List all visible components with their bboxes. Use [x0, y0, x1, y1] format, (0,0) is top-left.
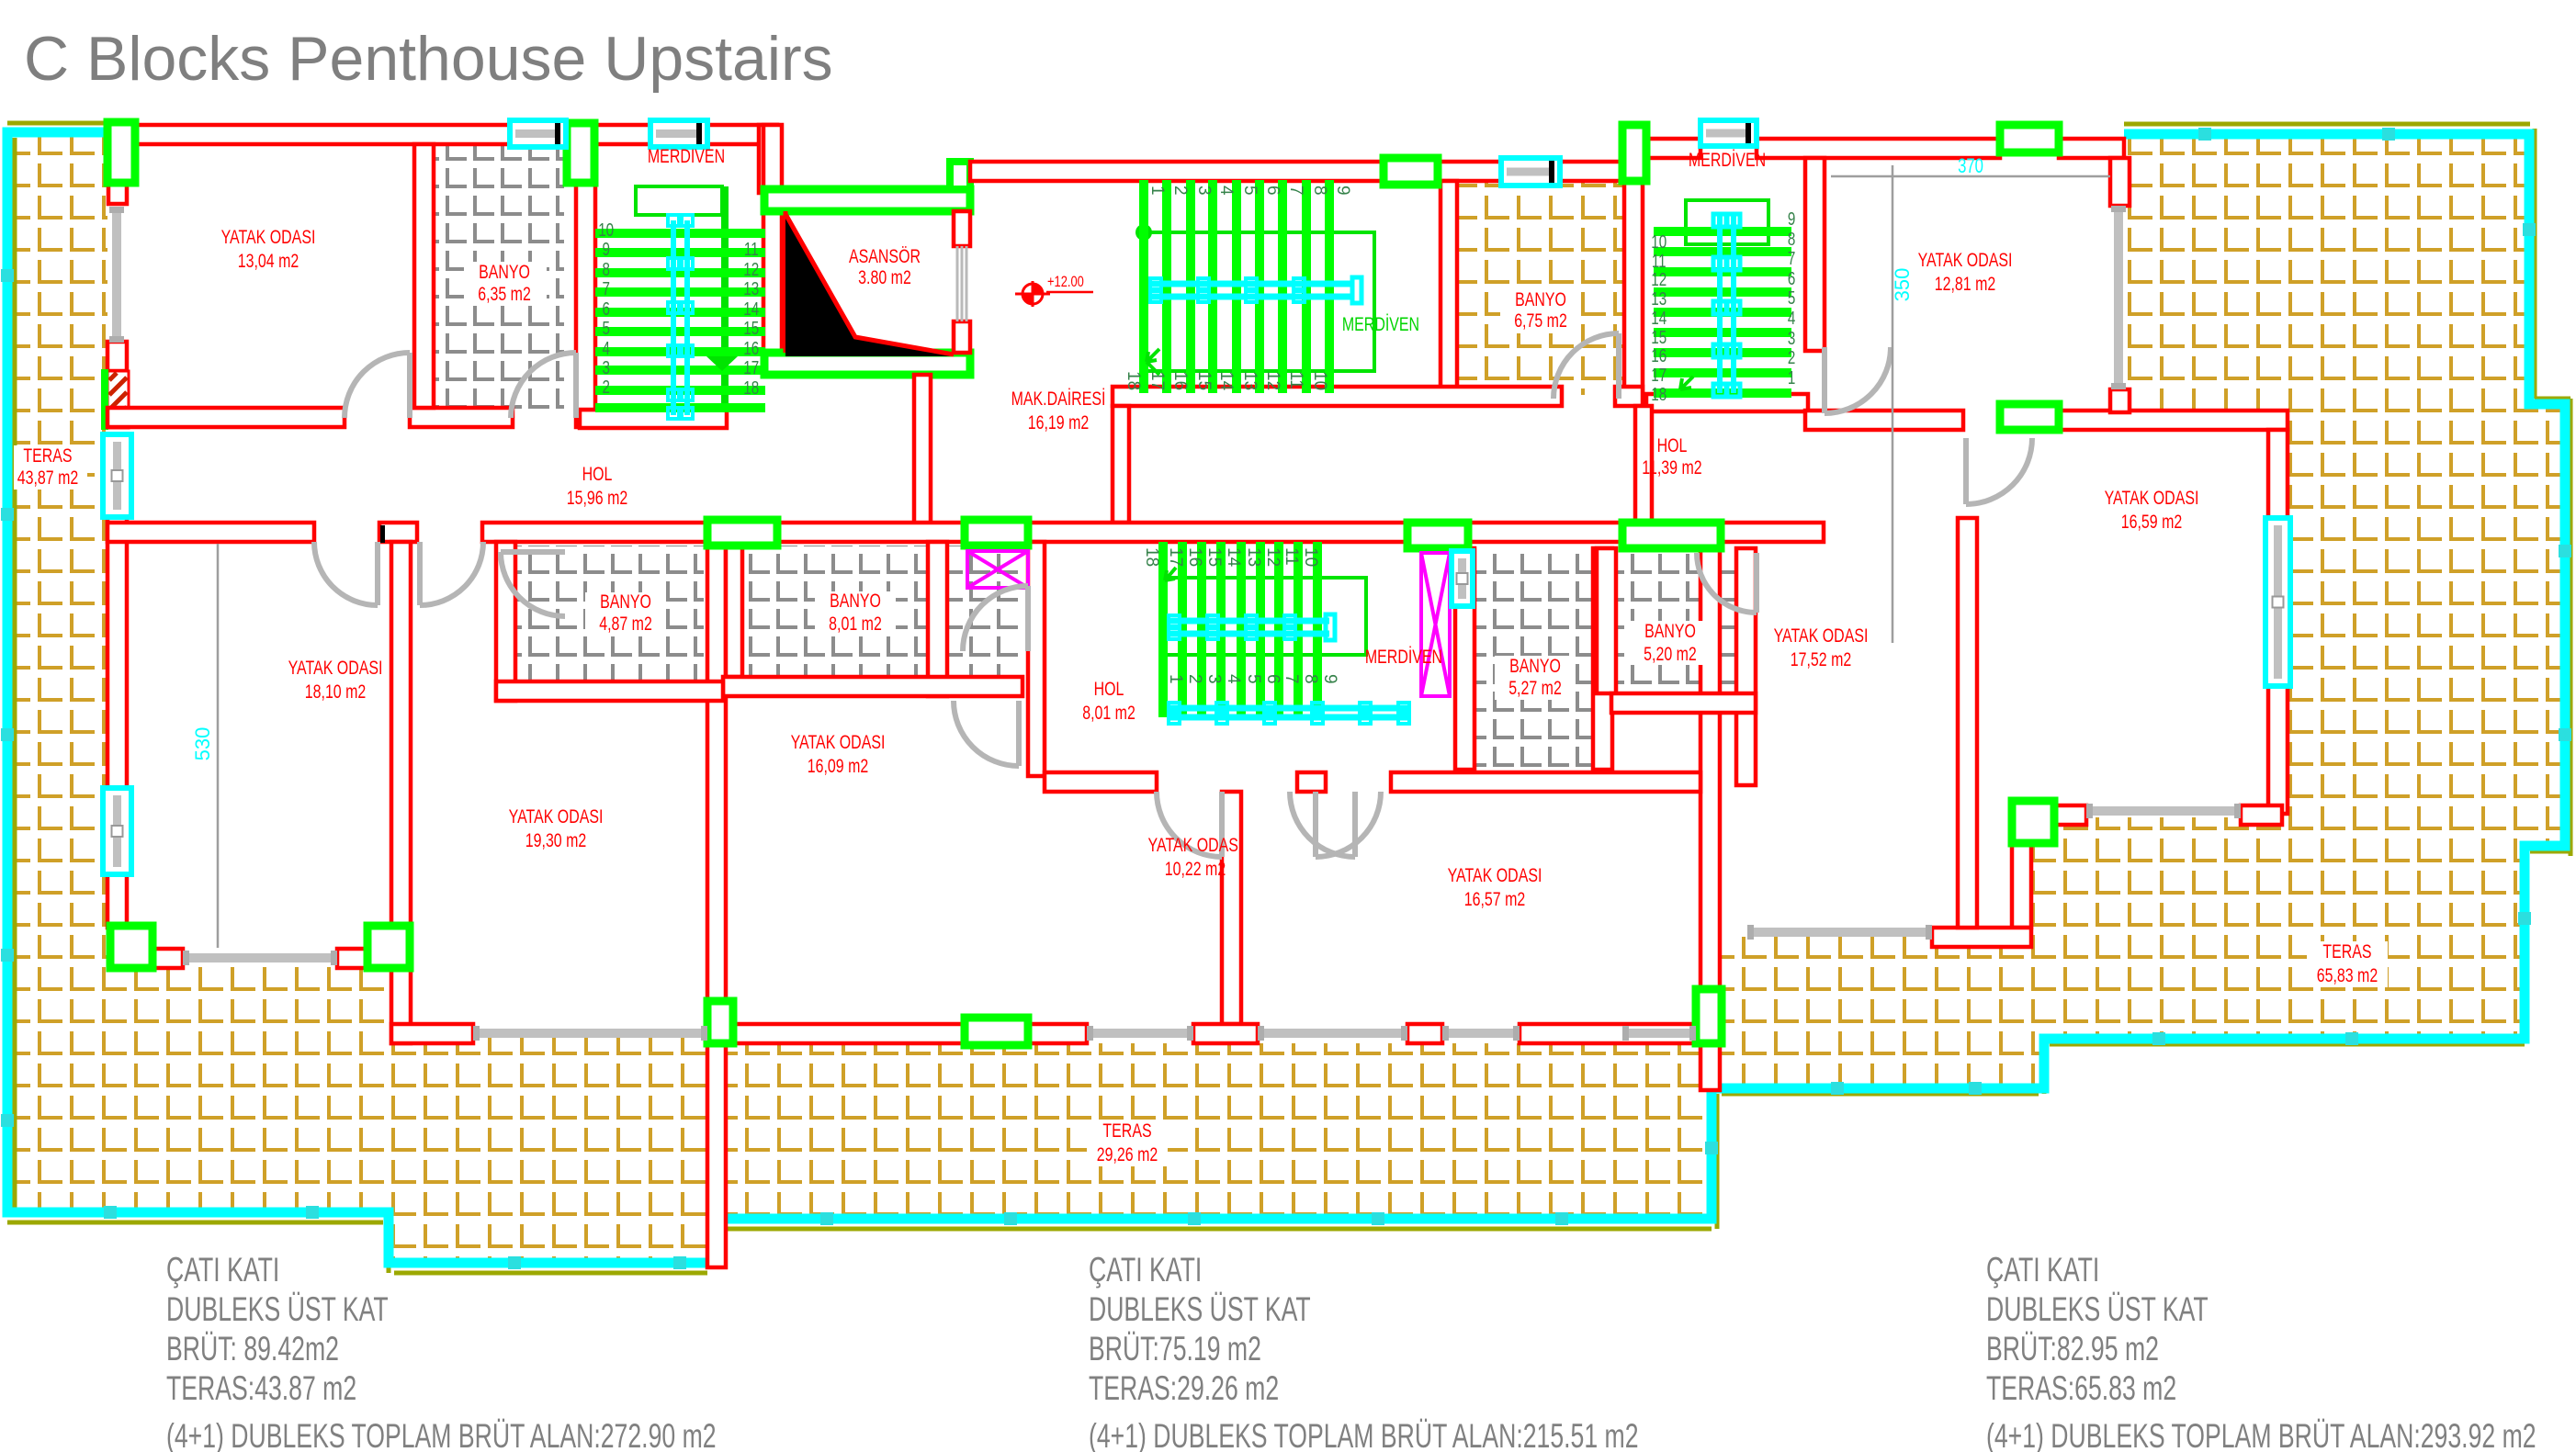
- svg-text:4: 4: [1788, 308, 1796, 329]
- svg-text:29,26 m2: 29,26 m2: [1097, 1143, 1158, 1165]
- svg-text:BANYO: BANYO: [1509, 655, 1561, 677]
- svg-text:7: 7: [1788, 248, 1795, 269]
- svg-text:1: 1: [1147, 186, 1167, 196]
- svg-text:TERAS:29.26 m2: TERAS:29.26 m2: [1089, 1369, 1279, 1407]
- svg-text:43,87 m2: 43,87 m2: [17, 467, 79, 489]
- svg-text:7: 7: [602, 278, 609, 299]
- svg-text:3: 3: [1194, 186, 1214, 196]
- svg-text:DUBLEKS ÜST KAT: DUBLEKS ÜST KAT: [1986, 1290, 2209, 1328]
- svg-text:DUBLEKS ÜST KAT: DUBLEKS ÜST KAT: [166, 1290, 389, 1328]
- svg-text:16,57 m2: 16,57 m2: [1464, 888, 1526, 910]
- svg-text:10: 10: [598, 219, 614, 241]
- svg-text:ÇATI KATI: ÇATI KATI: [1986, 1251, 2099, 1289]
- svg-text:530: 530: [191, 727, 214, 761]
- svg-text:3: 3: [1204, 674, 1224, 684]
- svg-text:ASANSÖR: ASANSÖR: [849, 245, 921, 267]
- svg-text:HOL: HOL: [1094, 678, 1124, 700]
- svg-text:11: 11: [1286, 371, 1305, 389]
- svg-text:13: 13: [743, 278, 759, 299]
- svg-text:8,01 m2: 8,01 m2: [829, 613, 882, 635]
- svg-text:YATAK ODASI: YATAK ODASI: [288, 657, 383, 679]
- svg-text:BRÜT:75.19 m2: BRÜT:75.19 m2: [1089, 1330, 1261, 1368]
- svg-text:YATAK ODASI: YATAK ODASI: [509, 805, 604, 827]
- svg-text:YATAK ODASI: YATAK ODASI: [1148, 834, 1243, 856]
- svg-text:6,75 m2: 6,75 m2: [1514, 310, 1567, 332]
- svg-text:BANYO: BANYO: [600, 591, 651, 613]
- svg-text:4: 4: [1224, 674, 1243, 684]
- svg-text:18: 18: [1651, 384, 1666, 405]
- svg-text:5: 5: [1244, 674, 1263, 684]
- svg-text:10: 10: [1310, 371, 1329, 390]
- svg-text:8: 8: [1301, 674, 1320, 684]
- svg-text:11: 11: [744, 239, 759, 260]
- svg-text:(4+1) DUBLEKS TOPLAM BRÜT ALAN: (4+1) DUBLEKS TOPLAM BRÜT ALAN:293.92 m2: [1986, 1417, 2536, 1452]
- svg-text:18: 18: [1124, 371, 1143, 390]
- svg-text:370: 370: [1958, 155, 1983, 178]
- svg-text:18: 18: [743, 377, 759, 399]
- svg-text:6: 6: [1263, 186, 1282, 196]
- svg-text:MERDIVEN: MERDIVEN: [648, 145, 725, 167]
- svg-text:9: 9: [602, 239, 610, 260]
- svg-text:5,27 m2: 5,27 m2: [1508, 677, 1562, 699]
- svg-text:5: 5: [1788, 287, 1796, 309]
- svg-text:HOL: HOL: [582, 463, 613, 485]
- svg-text:13: 13: [1651, 288, 1666, 310]
- svg-text:1: 1: [1166, 674, 1185, 684]
- svg-text:TERAS:43.87 m2: TERAS:43.87 m2: [166, 1369, 356, 1407]
- svg-text:BRÜT:82.95 m2: BRÜT:82.95 m2: [1986, 1330, 2159, 1368]
- svg-text:6: 6: [602, 298, 610, 320]
- svg-text:MERDİVEN: MERDİVEN: [1689, 149, 1766, 171]
- svg-text:12,81 m2: 12,81 m2: [1935, 273, 1996, 295]
- svg-text:1: 1: [1788, 367, 1795, 388]
- svg-text:15,96 m2: 15,96 m2: [567, 487, 628, 509]
- svg-text:8,01 m2: 8,01 m2: [1082, 702, 1135, 724]
- svg-text:YATAK ODASI: YATAK ODASI: [221, 226, 316, 248]
- svg-text:14: 14: [1224, 547, 1243, 568]
- svg-text:65,83 m2: 65,83 m2: [2317, 964, 2378, 986]
- svg-text:4,87 m2: 4,87 m2: [599, 613, 652, 635]
- svg-text:350: 350: [1891, 268, 1914, 302]
- svg-text:DUBLEKS ÜST KAT: DUBLEKS ÜST KAT: [1089, 1290, 1311, 1328]
- svg-text:14: 14: [1651, 308, 1666, 329]
- svg-text:12: 12: [1263, 371, 1282, 390]
- svg-text:BANYO: BANYO: [1515, 288, 1566, 310]
- svg-text:YATAK ODASI: YATAK ODASI: [1774, 625, 1869, 647]
- svg-text:2: 2: [602, 377, 609, 398]
- svg-text:17: 17: [1166, 547, 1185, 567]
- svg-text:3: 3: [1788, 328, 1796, 349]
- svg-text:5,20 m2: 5,20 m2: [1644, 643, 1697, 665]
- svg-text:19,30 m2: 19,30 m2: [525, 829, 587, 851]
- svg-text:13,04 m2: 13,04 m2: [238, 250, 299, 272]
- svg-text:16: 16: [1651, 345, 1666, 366]
- svg-text:12: 12: [1651, 269, 1666, 290]
- svg-text:15: 15: [1204, 547, 1224, 567]
- svg-text:ÇATI KATI: ÇATI KATI: [1089, 1251, 1202, 1289]
- svg-text:17: 17: [1147, 371, 1167, 390]
- svg-text:(4+1) DUBLEKS TOPLAM BRÜT ALAN: (4+1) DUBLEKS TOPLAM BRÜT ALAN:272.90 m2: [166, 1417, 717, 1452]
- svg-text:YATAK ODASI: YATAK ODASI: [2105, 487, 2199, 509]
- svg-text:9: 9: [1333, 186, 1352, 196]
- svg-text:+12.00: +12.00: [1047, 273, 1084, 290]
- svg-text:4: 4: [602, 338, 610, 359]
- svg-text:11: 11: [1282, 547, 1301, 566]
- svg-text:9: 9: [1788, 208, 1796, 230]
- svg-text:TERAS: TERAS: [1102, 1120, 1151, 1142]
- svg-text:TERAS: TERAS: [2322, 940, 2371, 962]
- svg-text:17: 17: [743, 357, 759, 378]
- svg-text:2: 2: [1185, 674, 1204, 684]
- svg-text:10: 10: [1301, 547, 1320, 567]
- svg-text:15: 15: [1194, 371, 1214, 390]
- svg-text:7: 7: [1286, 186, 1305, 196]
- svg-text:7: 7: [1282, 674, 1301, 684]
- svg-text:3: 3: [602, 357, 610, 378]
- svg-text:17,52 m2: 17,52 m2: [1791, 648, 1852, 670]
- svg-text:YATAK ODASI: YATAK ODASI: [1448, 864, 1542, 886]
- svg-text:2: 2: [1788, 347, 1795, 368]
- svg-text:HOL: HOL: [1657, 434, 1688, 456]
- svg-text:12: 12: [1263, 547, 1282, 567]
- svg-text:BANYO: BANYO: [1644, 620, 1696, 642]
- svg-text:16: 16: [1170, 371, 1190, 390]
- svg-text:16,09 m2: 16,09 m2: [808, 755, 869, 777]
- svg-text:16: 16: [743, 338, 759, 359]
- svg-text:15: 15: [743, 318, 759, 339]
- svg-text:13: 13: [1244, 547, 1263, 567]
- svg-text:8: 8: [602, 259, 610, 280]
- svg-text:12: 12: [743, 259, 759, 280]
- svg-text:2: 2: [1170, 186, 1190, 196]
- svg-text:TERAS: TERAS: [23, 445, 72, 467]
- svg-text:MERDİVEN: MERDİVEN: [1342, 313, 1419, 335]
- svg-text:BANYO: BANYO: [830, 590, 881, 612]
- svg-text:MAK.DAİRESİ: MAK.DAİRESİ: [1011, 388, 1106, 410]
- svg-text:4: 4: [1216, 186, 1236, 196]
- svg-text:(4+1) DUBLEKS TOPLAM BRÜT ALAN: (4+1) DUBLEKS TOPLAM BRÜT ALAN:215.51 m2: [1089, 1417, 1639, 1452]
- svg-text:MERDİVEN: MERDİVEN: [1365, 646, 1442, 668]
- svg-text:6,35 m2: 6,35 m2: [478, 283, 531, 305]
- svg-text:6: 6: [1788, 268, 1796, 289]
- svg-text:11,39 m2: 11,39 m2: [1642, 456, 1701, 478]
- svg-text:18: 18: [1142, 547, 1161, 567]
- svg-text:YATAK ODASI: YATAK ODASI: [791, 731, 886, 753]
- svg-text:YATAK ODASI: YATAK ODASI: [1918, 249, 2013, 271]
- svg-text:17: 17: [1651, 365, 1666, 386]
- svg-text:16,19 m2: 16,19 m2: [1028, 411, 1090, 433]
- svg-text:14: 14: [1216, 371, 1236, 391]
- svg-text:13: 13: [1240, 371, 1260, 390]
- svg-text:3.80 m2: 3.80 m2: [858, 266, 911, 288]
- svg-text:C Blocks Penthouse Upstairs: C Blocks Penthouse Upstairs: [24, 24, 833, 94]
- svg-text:8: 8: [1788, 229, 1796, 250]
- svg-text:10: 10: [1651, 231, 1666, 253]
- svg-text:8: 8: [1310, 186, 1329, 196]
- svg-text:6: 6: [1263, 674, 1282, 684]
- svg-text:TERAS:65.83 m2: TERAS:65.83 m2: [1986, 1369, 2176, 1407]
- svg-text:16,59 m2: 16,59 m2: [2121, 511, 2183, 533]
- svg-text:BRÜT: 89.42m2: BRÜT: 89.42m2: [166, 1330, 339, 1368]
- svg-text:10,22 m2: 10,22 m2: [1165, 858, 1226, 880]
- svg-text:ÇATI KATI: ÇATI KATI: [166, 1251, 279, 1289]
- svg-text:9: 9: [1320, 674, 1339, 684]
- svg-text:16: 16: [1185, 547, 1204, 567]
- svg-text:14: 14: [743, 298, 759, 320]
- svg-text:18,10 m2: 18,10 m2: [305, 681, 367, 703]
- svg-text:5: 5: [602, 318, 610, 339]
- svg-text:BANYO: BANYO: [479, 261, 530, 283]
- svg-text:5: 5: [1240, 186, 1260, 196]
